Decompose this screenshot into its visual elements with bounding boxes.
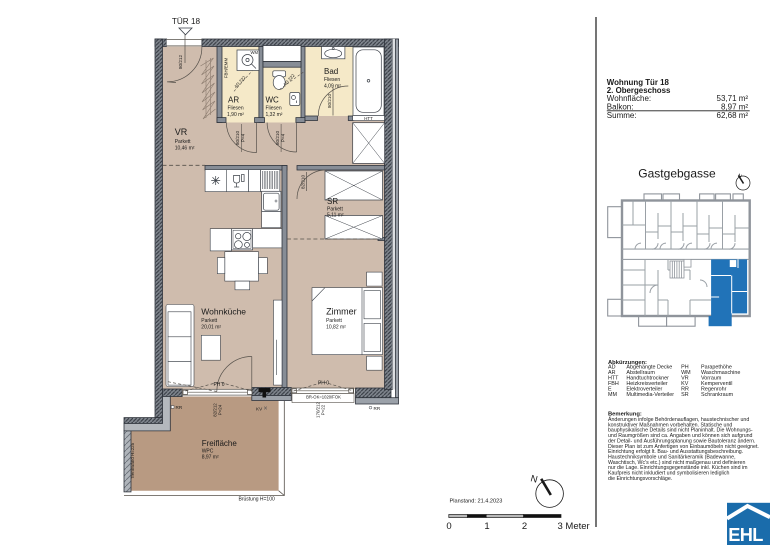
svg-text:10,82 m²: 10,82 m² <box>326 325 346 331</box>
svg-text:KV: KV <box>256 407 263 412</box>
svg-text:Trennwand H=225: Trennwand H=225 <box>130 442 135 479</box>
svg-text:Gastgebgasse: Gastgebgasse <box>638 167 716 181</box>
svg-text:VR: VR <box>175 127 188 137</box>
svg-text:WC: WC <box>266 96 280 105</box>
svg-text:Fliesen: Fliesen <box>228 106 244 112</box>
svg-text:HTT: HTT <box>364 116 373 121</box>
svg-text:82/210: 82/210 <box>301 175 306 189</box>
svg-text:4,09 m²: 4,09 m² <box>324 84 341 90</box>
svg-text:RR: RR <box>176 405 183 410</box>
svg-text:1,90 m²: 1,90 m² <box>227 112 244 118</box>
svg-text:RR: RR <box>374 406 381 411</box>
svg-text:Bad: Bad <box>324 67 338 76</box>
svg-text:AR: AR <box>228 96 239 105</box>
svg-text:TÜR 18: TÜR 18 <box>172 16 201 26</box>
svg-text:EHL: EHL <box>728 525 763 545</box>
svg-text:Fliesen: Fliesen <box>266 106 282 112</box>
svg-text:Parkett: Parkett <box>175 139 191 145</box>
svg-text:P=24: P=24 <box>218 404 223 415</box>
svg-text:P=4: P=4 <box>281 133 286 142</box>
svg-text:80/212: 80/212 <box>178 55 183 69</box>
svg-text:1: 1 <box>484 521 489 532</box>
svg-text:Parkett: Parkett <box>326 318 342 324</box>
svg-text:Freifläche: Freifläche <box>202 439 238 448</box>
svg-text:5,11 m²: 5,11 m² <box>327 213 344 219</box>
svg-text:10,46 m²: 10,46 m² <box>175 146 195 152</box>
svg-text:SR: SR <box>327 197 338 206</box>
svg-text:PH 0: PH 0 <box>213 382 224 388</box>
svg-text:Fliesen: Fliesen <box>324 77 340 83</box>
svg-text:Schrankraum: Schrankraum <box>701 392 734 398</box>
svg-text:P=4: P=4 <box>241 133 246 142</box>
svg-text:Parkett: Parkett <box>201 318 217 324</box>
svg-text:20,01 m²: 20,01 m² <box>201 325 221 331</box>
svg-text:80/210: 80/210 <box>327 94 332 108</box>
svg-text:2: 2 <box>522 521 527 532</box>
svg-text:8,97 m²: 8,97 m² <box>202 455 219 461</box>
svg-text:BR-OK=1020/FOK: BR-OK=1020/FOK <box>306 395 341 400</box>
svg-text:80/210: 80/210 <box>235 131 240 145</box>
svg-text:WM: WM <box>251 50 259 55</box>
svg-text:SR: SR <box>681 392 689 398</box>
svg-text:0: 0 <box>446 521 451 532</box>
svg-text:Planstand: 21.4.2023: Planstand: 21.4.2023 <box>450 499 503 505</box>
svg-text:1,32 m²: 1,32 m² <box>266 112 283 118</box>
svg-text:PH 0: PH 0 <box>318 381 329 387</box>
svg-text:Multimedia-Verteiler: Multimedia-Verteiler <box>626 392 674 398</box>
svg-text:Brüstung H=100: Brüstung H=100 <box>239 497 275 503</box>
svg-text:3 Meter: 3 Meter <box>558 521 590 532</box>
svg-text:die Einrichtungsvorschläge.: die Einrichtungsvorschläge. <box>608 476 672 482</box>
svg-text:Summe:: Summe: <box>607 111 637 120</box>
svg-text:P=22: P=22 <box>321 404 326 415</box>
svg-text:MM: MM <box>608 392 617 398</box>
svg-text:80/210: 80/210 <box>275 131 280 145</box>
svg-text:Zimmer: Zimmer <box>326 307 357 317</box>
svg-text:Wohnküche: Wohnküche <box>201 307 246 317</box>
svg-text:FBH/EMM: FBH/EMM <box>224 58 229 79</box>
svg-text:62,68 m²: 62,68 m² <box>717 111 749 120</box>
